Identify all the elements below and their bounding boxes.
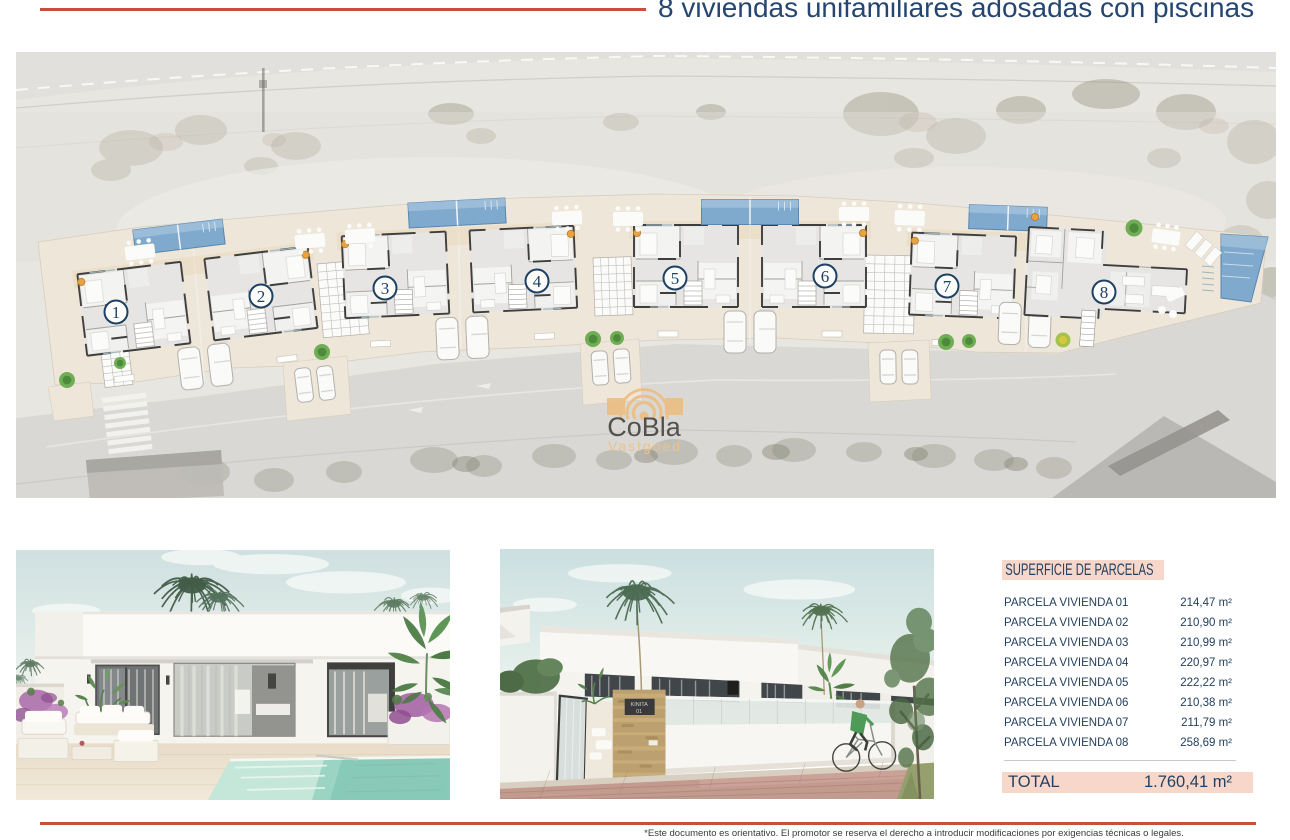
svg-text:KINITA: KINITA <box>631 702 649 708</box>
svg-text:Vastgoed: Vastgoed <box>608 438 682 454</box>
svg-text:7: 7 <box>943 277 952 296</box>
svg-text:1: 1 <box>112 303 121 322</box>
svg-text:4: 4 <box>533 272 542 291</box>
svg-text:5: 5 <box>671 269 680 288</box>
svg-text:8: 8 <box>1100 283 1109 302</box>
svg-text:6: 6 <box>821 267 830 286</box>
svg-text:01: 01 <box>636 709 642 715</box>
svg-text:2: 2 <box>257 287 266 306</box>
svg-text:3: 3 <box>381 279 390 298</box>
